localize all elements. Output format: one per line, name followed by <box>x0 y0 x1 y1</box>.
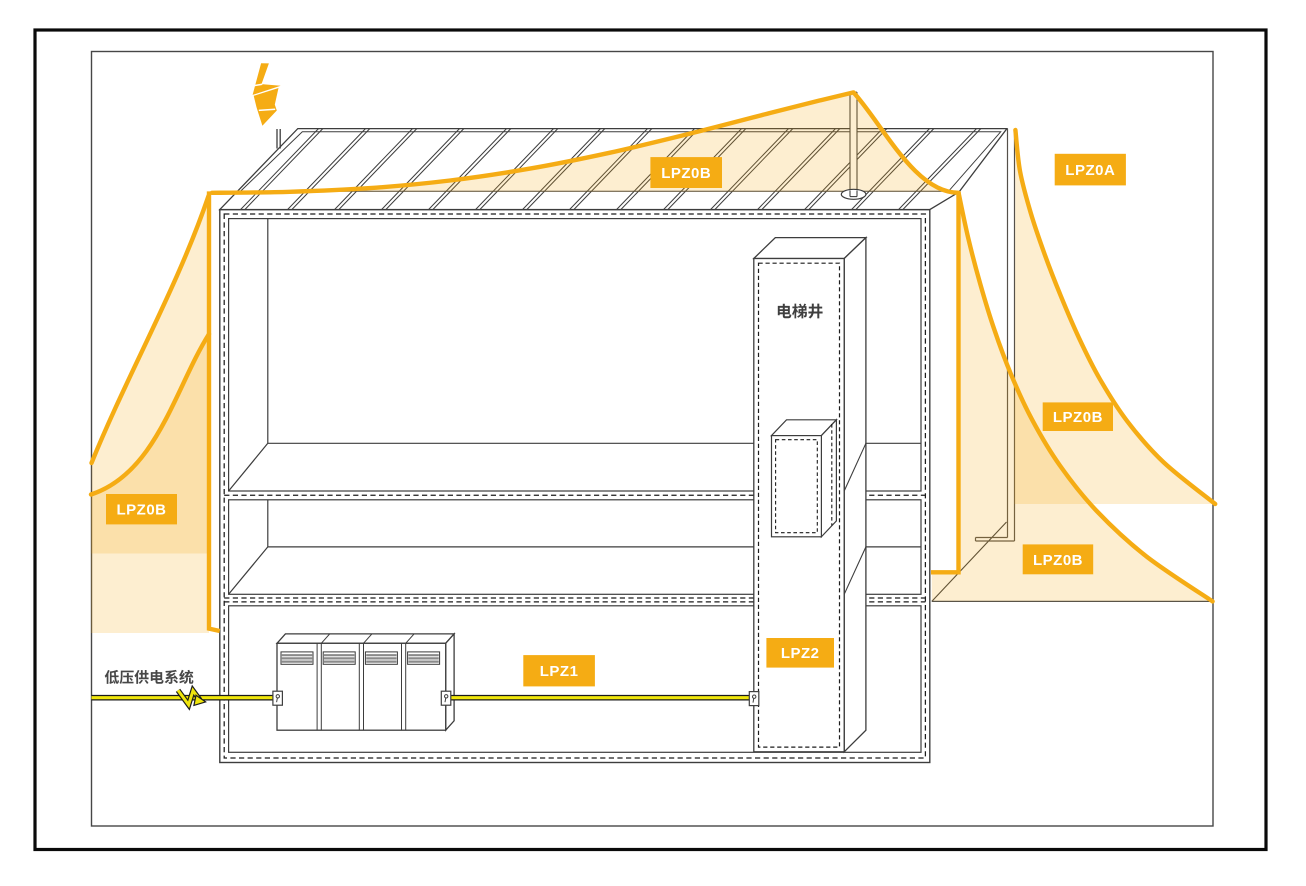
svg-text:LPZ0B: LPZ0B <box>1053 409 1103 426</box>
svg-text:LPZ0B: LPZ0B <box>116 502 166 519</box>
svg-text:LPZ0A: LPZ0A <box>1065 162 1115 179</box>
svg-text:LPZ2: LPZ2 <box>781 645 820 662</box>
svg-text:LPZ0B: LPZ0B <box>1033 552 1083 569</box>
svg-text:LPZ1: LPZ1 <box>540 663 579 680</box>
svg-text:LPZ0B: LPZ0B <box>661 165 711 182</box>
